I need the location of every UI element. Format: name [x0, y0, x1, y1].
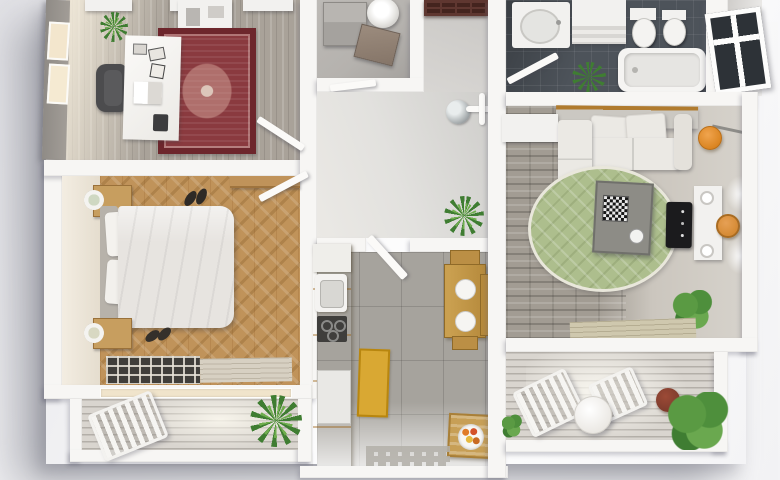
wall-mirror: [446, 100, 470, 124]
ceiling-light-panel: [85, 0, 132, 11]
plate: [455, 311, 476, 332]
tv-glyph: [681, 222, 684, 225]
side-table: [502, 114, 558, 142]
kitchen-appliance: [317, 370, 351, 424]
room-office: [44, 0, 300, 160]
balcony-large-plant: [666, 392, 732, 450]
console-speaker: [700, 244, 714, 258]
desk-paper: [148, 47, 166, 62]
washer-panels: [572, 26, 626, 44]
pendant-lamp: [698, 126, 722, 150]
door-panel: [427, 9, 440, 13]
balcony-small-plant: [502, 414, 522, 438]
palm-plant: [250, 395, 302, 447]
fruit: [462, 429, 469, 436]
room-hallway: [317, 0, 488, 238]
kitchen-mat: [357, 348, 390, 417]
kitchen-counter-white: [313, 244, 351, 272]
door-panel: [427, 3, 440, 7]
office-plant: [100, 12, 128, 42]
tv-screen: [666, 202, 693, 248]
room-kitchen: [317, 252, 488, 466]
bathtub-drain: [632, 67, 638, 73]
door-panel: [457, 9, 470, 13]
cabinet-item: [208, 6, 224, 18]
door-panel: [442, 3, 455, 7]
wash-basin: [520, 9, 560, 44]
room-balcony-left: [70, 399, 312, 462]
orange-stool: [716, 214, 740, 238]
washer-cabinet: [572, 0, 626, 44]
office-window-lower: [47, 63, 70, 104]
fruit-bowl: [457, 423, 484, 450]
grid-doormat: [366, 446, 450, 468]
bedside-lamp-bottom: [84, 323, 104, 343]
room-living: [506, 106, 742, 338]
chessboard: [602, 195, 629, 222]
ceiling-light-panel: [243, 0, 293, 11]
sink-basin: [320, 280, 344, 308]
coffee-table: [592, 181, 654, 256]
tv-glyph: [681, 234, 684, 237]
door-panel: [472, 9, 485, 13]
vanity: [512, 2, 570, 48]
hallway-plant: [444, 196, 484, 236]
wall-living-right: [742, 92, 758, 352]
tv-glyph: [681, 210, 684, 213]
plate: [455, 279, 476, 300]
bedroom-window: [100, 388, 292, 398]
burner: [327, 330, 339, 342]
room-bedroom: [62, 176, 300, 385]
desk-open-book: [134, 82, 163, 105]
room-bathroom: [506, 0, 706, 92]
faucet: [556, 20, 561, 25]
wall-left-outer: [44, 160, 62, 399]
fruit: [470, 428, 477, 435]
cabinet-item: [186, 8, 200, 26]
wall-kitchen-bottom: [300, 466, 508, 478]
office-window-upper: [47, 21, 70, 60]
floorplan-render: [0, 0, 780, 480]
fruit: [473, 437, 480, 444]
dining-stool-top: [450, 250, 480, 265]
bathroom-window: [705, 7, 772, 96]
door-panel: [472, 3, 485, 7]
office-left-wall: [42, 0, 70, 160]
wall-office-bedroom: [44, 160, 317, 176]
office-chair: [96, 64, 126, 112]
grid-rug: [106, 356, 200, 384]
bathtub: [618, 48, 706, 92]
runner-rug: [200, 357, 292, 383]
door-panel: [457, 3, 470, 7]
wall-bathroom-living: [506, 92, 758, 106]
bathroom-plant: [572, 62, 606, 92]
cooktop: [317, 316, 347, 342]
sofa-arm-right: [674, 114, 692, 170]
coat-rack-post: [479, 93, 485, 125]
palm-plant-inner: [259, 404, 293, 438]
room-balcony-right: [506, 352, 728, 452]
bidet-bowl: [663, 18, 686, 46]
hallway-plant-inner: [451, 203, 477, 229]
console-speaker: [700, 191, 714, 205]
kitchen-sink: [315, 274, 347, 312]
desk-lamp: [153, 114, 168, 131]
desk-notebook: [149, 63, 165, 79]
desk-paper: [133, 43, 147, 54]
balcony-table: [574, 396, 612, 434]
wall-living-balcony: [506, 338, 758, 352]
door-panel: [442, 9, 455, 13]
wall-center-spine: [488, 0, 506, 478]
entrance-door: [424, 0, 488, 16]
office-plant-inner: [105, 17, 123, 35]
office-chair-seat: [104, 70, 122, 106]
dining-stool-bottom: [452, 336, 478, 350]
bed-duvet: [118, 206, 234, 328]
office-desk: [123, 35, 182, 140]
toilet-bowl: [632, 18, 656, 48]
table-plate: [629, 228, 645, 244]
